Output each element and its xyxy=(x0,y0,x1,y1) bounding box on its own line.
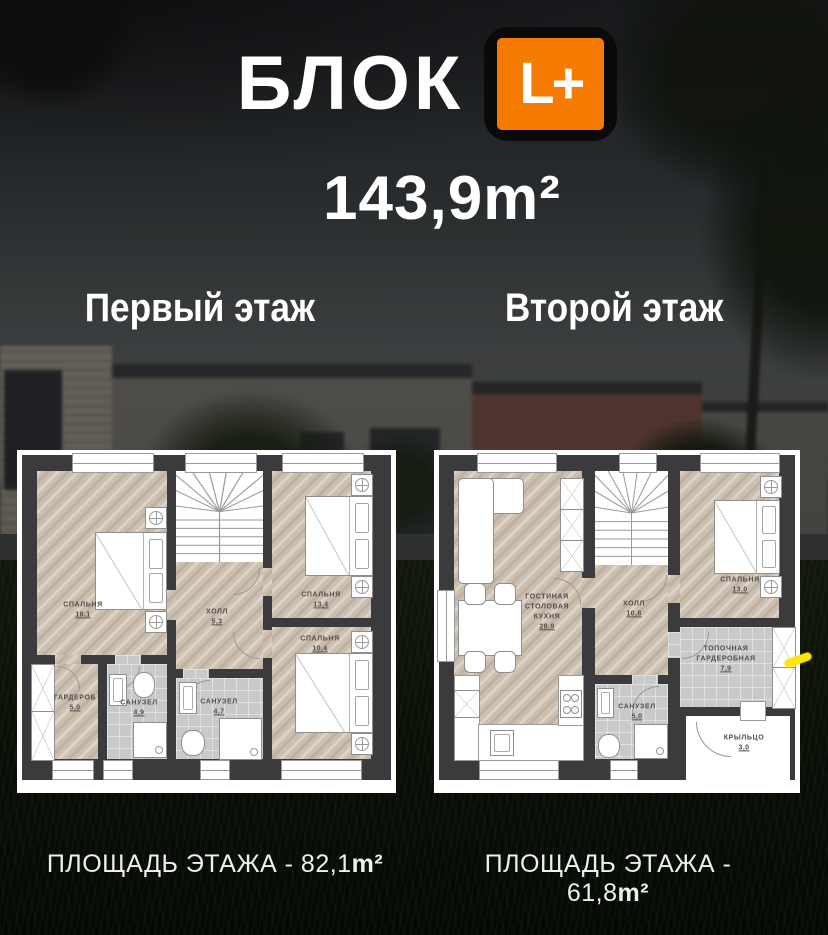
shower-icon xyxy=(219,718,262,760)
nightstand-icon xyxy=(351,474,373,496)
window-icon xyxy=(479,760,559,780)
wardrobe-cabinet-icon xyxy=(31,711,55,761)
room-area: 10,4 xyxy=(312,645,327,654)
floorplan-second: ГОСТИНАЯ СТОЛОВАЯ КУХНЯ 28,9 ХОЛЛ 10,8 С… xyxy=(434,450,800,793)
double-bed-icon xyxy=(295,653,373,733)
burner-icon xyxy=(563,694,571,702)
double-bed-icon xyxy=(95,532,167,610)
brand-badge-label: L+ xyxy=(497,38,604,130)
floorplan-first: СПАЛЬНЯ 18,1 ХОЛЛ 5,3 СПАЛЬНЯ 13,4 СПАЛЬ… xyxy=(17,450,396,793)
room-name: СПАЛЬНЯ xyxy=(300,634,339,643)
room-area: 4,9 xyxy=(134,709,145,718)
floor1-area-caption: ПЛОЩАДЬ ЭТАЖА - 82,1m² xyxy=(0,850,430,879)
nightstand-icon xyxy=(351,631,373,653)
floor2-title-text: Второй этаж xyxy=(505,286,723,331)
room-label-porch: КРЫЛЬЦО 3,0 xyxy=(724,733,765,752)
room-name: КУХНЯ xyxy=(534,613,561,622)
toilet-icon xyxy=(181,730,205,756)
kitchen-counter xyxy=(454,675,480,761)
room-area: 13,0 xyxy=(732,586,747,595)
window-icon xyxy=(610,760,638,780)
room-name: ХОЛЛ xyxy=(206,607,228,616)
room-label-bedroom-104: СПАЛЬНЯ 10,4 xyxy=(300,634,339,653)
bed-detail xyxy=(296,654,345,732)
room-area: 5,3 xyxy=(212,618,223,627)
room-area: 3,0 xyxy=(739,744,750,753)
toilet-icon xyxy=(133,672,155,698)
room-label-bath-50: САНУЗЕЛ 5,0 xyxy=(618,702,656,721)
door-opening xyxy=(115,655,141,664)
nightstand-icon xyxy=(351,576,373,598)
room-label-bedroom-134: СПАЛЬНЯ 13,4 xyxy=(301,590,340,609)
floor1-title-text: Первый этаж xyxy=(85,286,315,331)
bed-detail xyxy=(715,501,757,573)
door-opening xyxy=(167,590,176,620)
door-opening xyxy=(668,575,680,603)
window-icon xyxy=(185,453,257,473)
brand-title: БЛОК xyxy=(237,46,465,122)
double-bed-icon xyxy=(714,500,780,574)
room-label-hall: ХОЛЛ 5,3 xyxy=(206,607,228,626)
nightstand-icon xyxy=(145,507,167,529)
bed-detail xyxy=(143,533,144,609)
room-name: ГАРДЕРОБ xyxy=(54,693,96,702)
sink-icon xyxy=(179,682,197,714)
stairs-icon xyxy=(176,471,263,562)
porch-step xyxy=(740,701,766,721)
pillow-icon xyxy=(762,540,776,568)
burner-icon xyxy=(571,706,579,714)
window-icon xyxy=(281,760,362,780)
pillow-icon xyxy=(355,660,369,690)
shower-icon xyxy=(133,722,167,758)
pillow-icon xyxy=(149,539,163,569)
nightstand-icon xyxy=(760,576,782,598)
toilet-icon xyxy=(598,734,620,758)
room-name: ХОЛЛ xyxy=(623,599,645,608)
caption-text: ПЛОЩАДЬ ЭТАЖА - 61,8 xyxy=(485,850,732,907)
window-icon xyxy=(200,760,230,780)
double-bed-icon xyxy=(305,496,373,576)
window-icon xyxy=(700,453,780,473)
room-label-hall2: ХОЛЛ 10,8 xyxy=(623,599,645,618)
total-area: 143,9m² xyxy=(28,163,828,234)
bed-detail xyxy=(349,497,350,575)
door-opening xyxy=(263,630,272,658)
door-opening xyxy=(55,655,81,664)
window-icon xyxy=(72,453,154,473)
window-icon xyxy=(52,760,94,780)
chair-icon xyxy=(494,583,516,605)
room-area: 4,7 xyxy=(214,708,225,717)
room-area: 28,9 xyxy=(539,623,554,632)
room-label-bedroom-130: СПАЛЬНЯ 13,0 xyxy=(720,575,759,594)
room-name: САНУЗЕЛ xyxy=(120,698,158,707)
room-area: 7,9 xyxy=(721,665,732,674)
room-name: ГОСТИНАЯ xyxy=(525,592,568,601)
room-label-boiler: ТОПОЧНАЯ ГАРДЕРОБНАЯ 7,9 xyxy=(696,644,755,673)
room-name: КРЫЛЬЦО xyxy=(724,733,765,742)
poster: БЛОК L+ 143,9m² Первый этаж Второй этаж xyxy=(0,0,828,935)
door-opening xyxy=(668,632,680,658)
window-icon xyxy=(619,453,657,473)
door-opening xyxy=(632,675,658,684)
room-name: СПАЛЬНЯ xyxy=(63,600,102,609)
pillow-icon xyxy=(149,573,163,603)
door-opening xyxy=(263,568,272,596)
room-name: САНУЗЕЛ xyxy=(200,697,238,706)
room-label-bath-47: САНУЗЕЛ 4,7 xyxy=(200,697,238,716)
room-area: 5,0 xyxy=(632,713,643,722)
pillow-icon xyxy=(762,506,776,534)
kitchen-sink-icon xyxy=(490,730,514,756)
nightstand-icon xyxy=(145,611,167,633)
room-area: 13,4 xyxy=(313,601,328,610)
nightstand-icon xyxy=(351,733,373,755)
caption-unit: m² xyxy=(352,850,384,878)
kitchen-cabinet-icon xyxy=(560,478,584,511)
bed-detail xyxy=(96,533,142,609)
stairs-icon xyxy=(595,471,668,565)
room-name: САНУЗЕЛ xyxy=(618,702,656,711)
floor2-title: Второй этаж xyxy=(414,286,814,331)
floor2-area-caption: ПЛОЩАДЬ ЭТАЖА - 61,8m² xyxy=(440,850,776,908)
pillow-icon xyxy=(355,503,369,533)
bed-detail xyxy=(306,497,349,575)
room-label-bath-49: САНУЗЕЛ 4,9 xyxy=(120,698,158,717)
room-name: СПАЛЬНЯ xyxy=(720,575,759,584)
sink-icon xyxy=(597,688,614,718)
wardrobe-cabinet-icon xyxy=(31,664,55,713)
chair-icon xyxy=(494,651,516,673)
kitchen-appliance-icon xyxy=(454,690,480,718)
kitchen-cabinet-icon xyxy=(560,509,584,542)
window-icon xyxy=(477,453,557,473)
bed-detail xyxy=(349,654,350,732)
door-opening xyxy=(582,578,595,608)
chair-icon xyxy=(464,651,486,673)
room-area: 18,1 xyxy=(75,611,90,620)
room-name: ТОПОЧНАЯ xyxy=(704,644,749,653)
window-icon xyxy=(437,590,455,662)
burner-icon xyxy=(571,694,579,702)
shower-icon xyxy=(634,724,668,759)
pillow-icon xyxy=(355,539,369,569)
stove-icon xyxy=(560,690,582,718)
caption-unit: m² xyxy=(618,879,650,907)
room-label-wardrobe: ГАРДЕРОБ 5,0 xyxy=(54,693,96,712)
room-name: СПАЛЬНЯ xyxy=(301,590,340,599)
room-area: 5,0 xyxy=(70,704,81,713)
room-area: 10,8 xyxy=(626,610,641,619)
room-label-living: ГОСТИНАЯ СТОЛОВАЯ КУХНЯ 28,9 xyxy=(525,592,569,631)
nightstand-icon xyxy=(760,476,782,498)
chair-icon xyxy=(464,583,486,605)
kitchen-cabinet-icon xyxy=(560,540,584,572)
window-icon xyxy=(282,453,364,473)
brand-header: БЛОК L+ xyxy=(0,24,828,144)
floor1-title: Первый этаж xyxy=(0,286,400,331)
sofa-icon xyxy=(458,478,494,584)
brand-badge: L+ xyxy=(484,27,617,141)
room-name: ГАРДЕРОБНАЯ xyxy=(696,654,755,663)
dining-table-icon xyxy=(458,600,522,656)
burner-icon xyxy=(563,706,571,714)
pillow-icon xyxy=(355,696,369,726)
room-name: СТОЛОВАЯ xyxy=(525,602,569,611)
caption-text: ПЛОЩАДЬ ЭТАЖА - 82,1 xyxy=(47,850,352,878)
room-label-bedroom-18: СПАЛЬНЯ 18,1 xyxy=(63,600,102,619)
wardrobe-cabinet-icon xyxy=(772,667,796,709)
window-icon xyxy=(103,760,133,780)
door-opening xyxy=(183,669,209,678)
